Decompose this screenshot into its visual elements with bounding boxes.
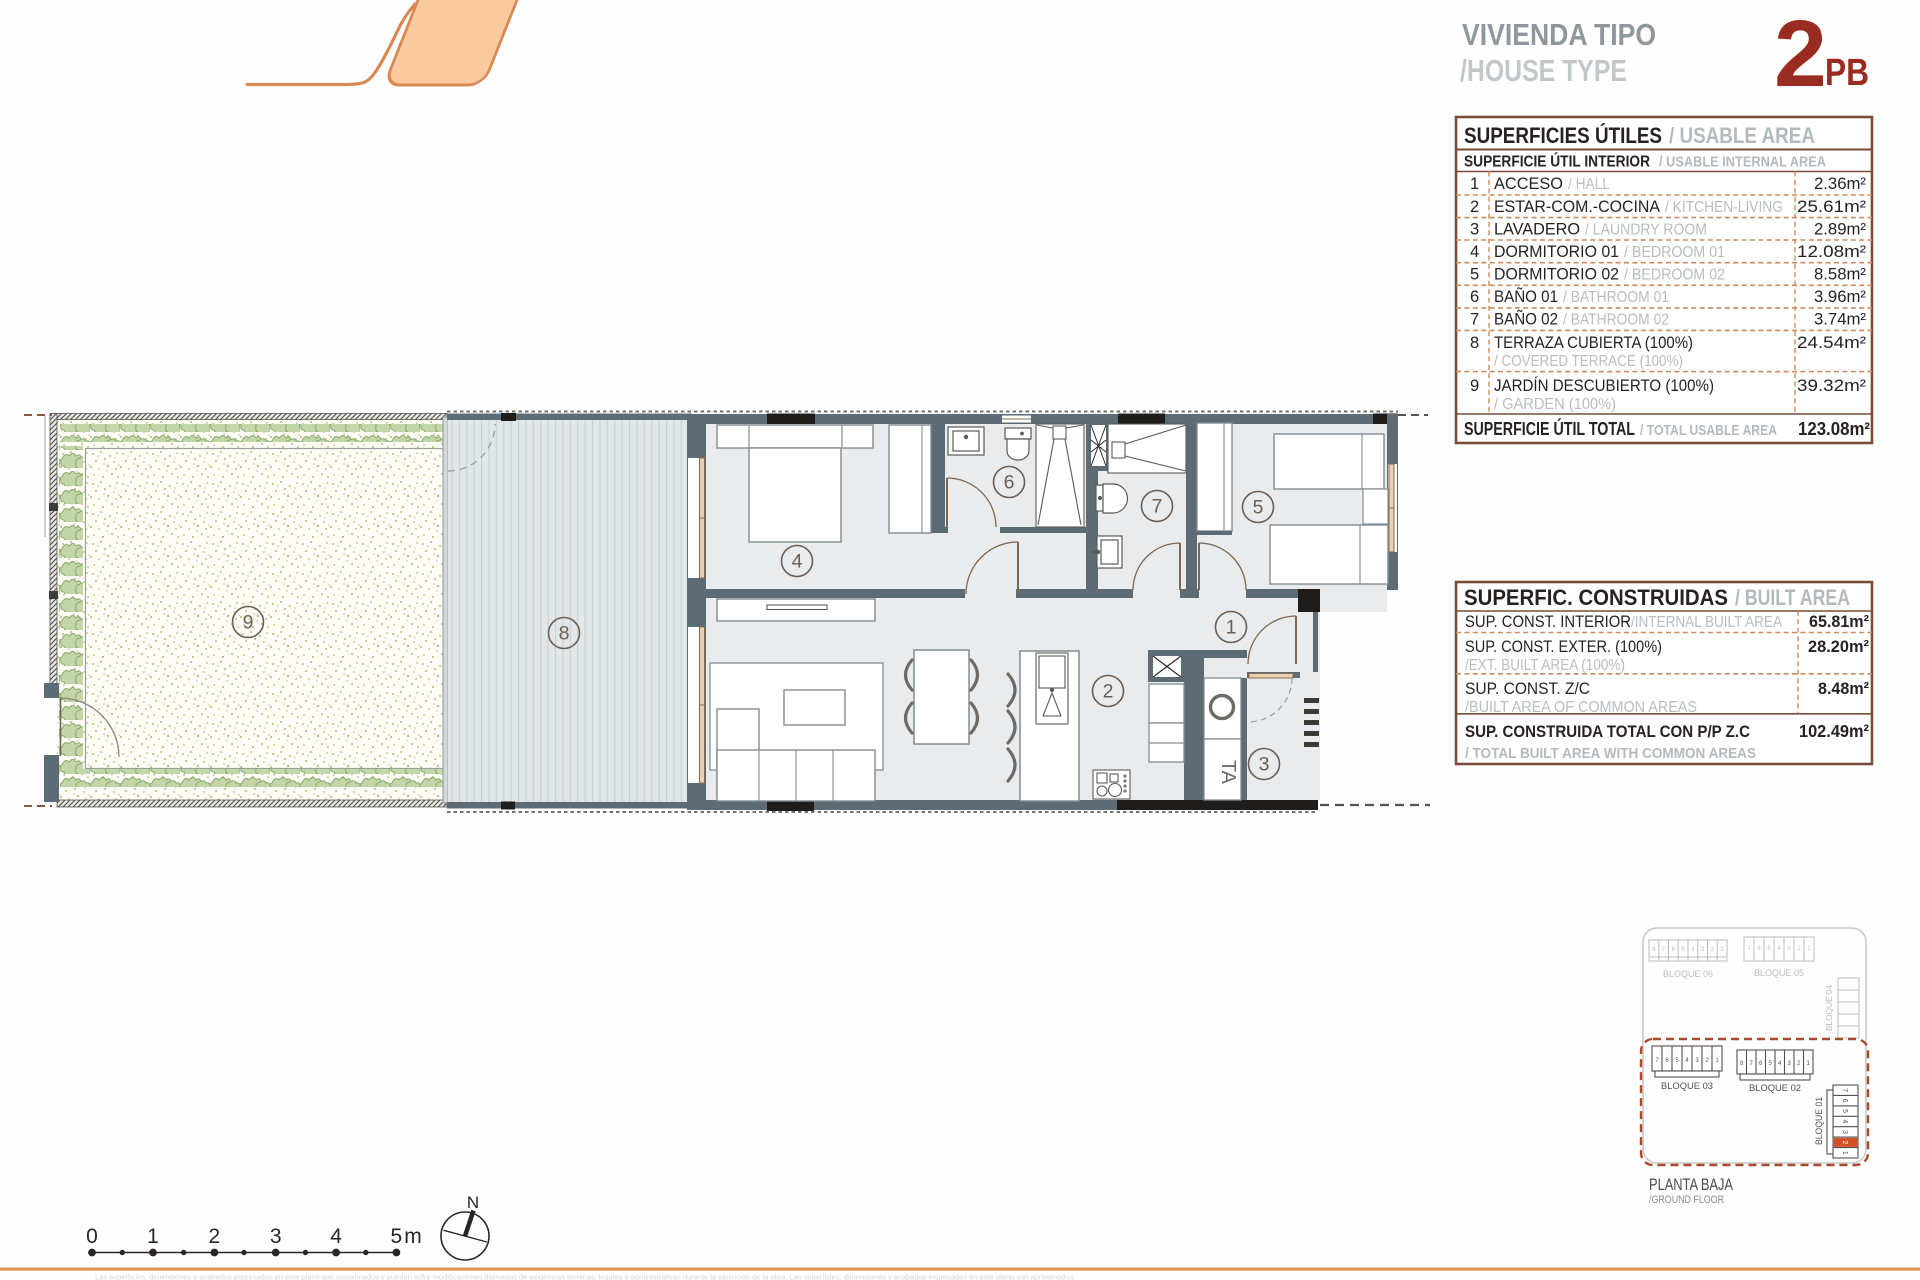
- svg-text:/INTERNAL BUILT AREA: /INTERNAL BUILT AREA: [1631, 614, 1783, 631]
- svg-text:2: 2: [209, 1225, 221, 1248]
- svg-text:5: 5: [391, 1225, 403, 1248]
- svg-text:4: 4: [1470, 243, 1479, 261]
- svg-text:/ USABLE AREA: / USABLE AREA: [1669, 123, 1815, 148]
- svg-text:8: 8: [559, 623, 570, 645]
- svg-text:7: 7: [1152, 496, 1163, 518]
- svg-text:2: 2: [1774, 1, 1827, 107]
- svg-text:/ HALL: / HALL: [1568, 176, 1610, 193]
- svg-text:3.74m²: 3.74m²: [1814, 311, 1867, 329]
- svg-text:6: 6: [1004, 472, 1015, 494]
- svg-text:VIVIENDA TIPO: VIVIENDA TIPO: [1462, 18, 1656, 52]
- svg-text:2.36m²: 2.36m²: [1814, 175, 1867, 193]
- svg-text:DORMITORIO 02: DORMITORIO 02: [1494, 266, 1619, 284]
- svg-text:4: 4: [1841, 1120, 1848, 1124]
- svg-text:m: m: [404, 1225, 422, 1248]
- svg-text:/ KITCHEN-LIVING: / KITCHEN-LIVING: [1665, 199, 1783, 216]
- svg-text:7: 7: [1470, 311, 1479, 329]
- svg-text:1: 1: [1226, 617, 1237, 639]
- svg-text:/ TOTAL USABLE AREA: / TOTAL USABLE AREA: [1640, 423, 1777, 439]
- svg-text:SUP. CONSTRUIDA TOTAL CON P/P: SUP. CONSTRUIDA TOTAL CON P/P Z.C: [1465, 722, 1750, 741]
- svg-text:SUP. CONST. INTERIOR: SUP. CONST. INTERIOR: [1465, 613, 1631, 631]
- svg-text:BLOQUE 01: BLOQUE 01: [1814, 1097, 1824, 1145]
- svg-text:DORMITORIO 01: DORMITORIO 01: [1494, 243, 1619, 261]
- svg-text:/ BEDROOM 01: / BEDROOM 01: [1624, 244, 1725, 261]
- svg-text:6: 6: [1470, 288, 1479, 306]
- svg-text:N: N: [467, 1193, 479, 1212]
- svg-text:3: 3: [1470, 221, 1479, 239]
- svg-text:25.61m²: 25.61m²: [1797, 198, 1867, 216]
- svg-text:8.58m²: 8.58m²: [1814, 266, 1867, 284]
- svg-text:3: 3: [270, 1225, 282, 1248]
- svg-text:PLANTA BAJA: PLANTA BAJA: [1649, 1175, 1733, 1194]
- svg-text:9: 9: [1470, 377, 1479, 395]
- svg-text:TA: TA: [1217, 760, 1239, 785]
- svg-text:/ BUILT AREA: / BUILT AREA: [1735, 585, 1850, 610]
- svg-text:LAVADERO: LAVADERO: [1494, 221, 1580, 239]
- svg-text:6: 6: [1841, 1099, 1848, 1103]
- svg-text:4: 4: [792, 551, 803, 573]
- svg-text:8.48m²: 8.48m²: [1818, 680, 1869, 698]
- svg-text:/ TOTAL BUILT AREA WITH COMMON: / TOTAL BUILT AREA WITH COMMON AREAS: [1465, 745, 1756, 762]
- svg-text:65.81m²: 65.81m²: [1809, 613, 1869, 631]
- svg-text:1: 1: [147, 1225, 159, 1248]
- svg-text:SUPERFICIE ÚTIL INTERIOR: SUPERFICIE ÚTIL INTERIOR: [1464, 153, 1650, 171]
- svg-text:3: 3: [1259, 754, 1270, 776]
- svg-text:BLOQUE 03: BLOQUE 03: [1661, 1081, 1713, 1092]
- svg-text:/BUILT AREA OF COMMON AREAS: /BUILT AREA OF COMMON AREAS: [1465, 699, 1697, 716]
- svg-text:SUPERFIC. CONSTRUIDAS: SUPERFIC. CONSTRUIDAS: [1464, 585, 1728, 610]
- svg-text:/GROUND FLOOR: /GROUND FLOOR: [1649, 1194, 1724, 1206]
- svg-text:39.32m²: 39.32m²: [1797, 377, 1867, 395]
- svg-text:/ BATHROOM 02: / BATHROOM 02: [1563, 312, 1669, 329]
- svg-text:PB: PB: [1825, 52, 1869, 94]
- svg-text:/ COVERED TERRACE (100%): / COVERED TERRACE (100%): [1494, 353, 1683, 370]
- svg-text:102.49m²: 102.49m²: [1799, 721, 1869, 741]
- svg-text:1: 1: [1841, 1151, 1848, 1155]
- svg-text:3: 3: [1841, 1130, 1848, 1134]
- svg-text:BAÑO 01: BAÑO 01: [1494, 286, 1558, 306]
- svg-text:123.08m²: 123.08m²: [1798, 419, 1870, 439]
- svg-text:TERRAZA CUBIERTA (100%): TERRAZA CUBIERTA (100%): [1494, 334, 1693, 352]
- svg-text:/ GARDEN (100%): / GARDEN (100%): [1494, 396, 1616, 413]
- svg-text:5: 5: [1470, 266, 1479, 284]
- svg-text:/HOUSE TYPE: /HOUSE TYPE: [1460, 54, 1627, 88]
- svg-text:/ USABLE INTERNAL AREA: / USABLE INTERNAL AREA: [1659, 154, 1826, 171]
- svg-text:7: 7: [1841, 1088, 1848, 1092]
- svg-text:2.89m²: 2.89m²: [1814, 221, 1867, 239]
- svg-text:3.96m²: 3.96m²: [1814, 288, 1867, 306]
- svg-text:BLOQUE 05: BLOQUE 05: [1754, 968, 1804, 978]
- svg-text:/ BATHROOM 01: / BATHROOM 01: [1563, 289, 1669, 306]
- svg-text:4: 4: [330, 1225, 342, 1248]
- svg-text:ESTAR-COM.-COCINA: ESTAR-COM.-COCINA: [1494, 198, 1660, 216]
- svg-text:BLOQUE 04: BLOQUE 04: [1824, 985, 1834, 1031]
- svg-text:SUPERFICIE ÚTIL TOTAL: SUPERFICIE ÚTIL TOTAL: [1464, 418, 1635, 439]
- svg-text:5: 5: [1253, 497, 1264, 519]
- svg-text:/ LAUNDRY ROOM: / LAUNDRY ROOM: [1585, 222, 1707, 239]
- svg-text:JARDÍN DESCUBIERTO (100%): JARDÍN DESCUBIERTO (100%): [1494, 376, 1714, 395]
- svg-text:2: 2: [1103, 681, 1114, 703]
- svg-text:BAÑO 02: BAÑO 02: [1494, 309, 1558, 329]
- svg-text:9: 9: [243, 612, 254, 634]
- svg-text:1: 1: [1470, 175, 1479, 193]
- svg-text:2: 2: [1470, 198, 1479, 216]
- svg-text:SUP. CONST. Z/C: SUP. CONST. Z/C: [1465, 680, 1590, 698]
- svg-text:12.08m²: 12.08m²: [1797, 243, 1867, 261]
- svg-text:2: 2: [1841, 1140, 1848, 1144]
- svg-text:5: 5: [1841, 1109, 1848, 1113]
- svg-text:SUP. CONST. EXTER. (100%): SUP. CONST. EXTER. (100%): [1465, 638, 1662, 656]
- svg-text:BLOQUE 06: BLOQUE 06: [1663, 969, 1713, 979]
- svg-text:8: 8: [1470, 334, 1479, 352]
- svg-text:0: 0: [86, 1225, 98, 1248]
- svg-text:28.20m²: 28.20m²: [1808, 638, 1869, 656]
- svg-text:/EXT. BUILT AREA (100%): /EXT. BUILT AREA (100%): [1465, 657, 1625, 674]
- svg-text:24.54m²: 24.54m²: [1797, 334, 1867, 352]
- svg-text:Las superficies, dimensiones y: Las superficies, dimensiones y acabados …: [95, 1273, 1076, 1280]
- svg-text:SUPERFICIES ÚTILES: SUPERFICIES ÚTILES: [1464, 123, 1662, 148]
- svg-text:ACCESO: ACCESO: [1494, 175, 1563, 193]
- svg-text:/ BEDROOM 02: / BEDROOM 02: [1624, 267, 1725, 284]
- svg-text:BLOQUE 02: BLOQUE 02: [1749, 1083, 1801, 1094]
